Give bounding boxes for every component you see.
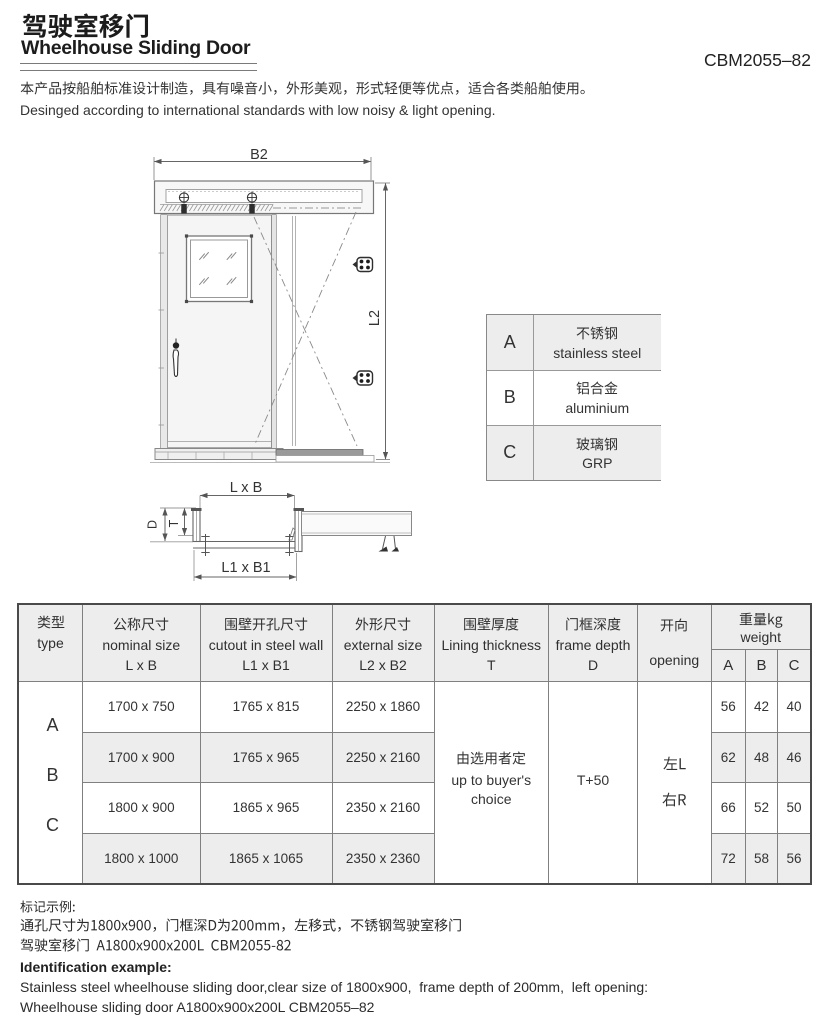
- svg-text:T: T: [167, 519, 181, 527]
- svg-text:L2: L2: [367, 310, 383, 326]
- svg-text:D: D: [146, 520, 160, 529]
- svg-text:B2: B2: [250, 147, 268, 163]
- svg-text:L1 x B1: L1 x B1: [221, 560, 270, 576]
- svg-text:L x B: L x B: [230, 480, 263, 496]
